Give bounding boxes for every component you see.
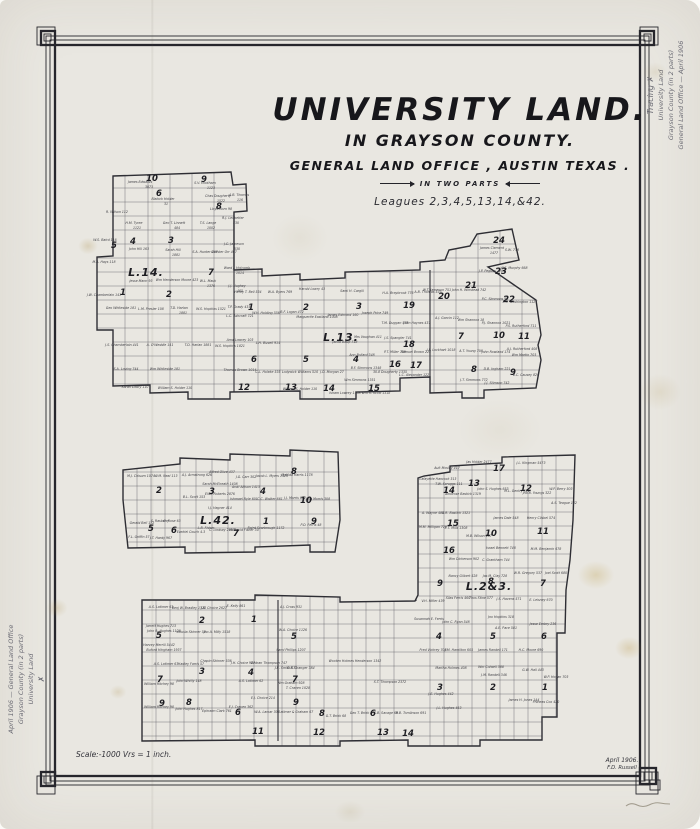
parcel-label: G.R. Bastick 1321 (442, 511, 470, 515)
parcel-label: Latimer & Graham 67 (279, 710, 314, 714)
parcel-label: Susannah E. Ferris (414, 617, 444, 621)
parcel-label: H.M. Tyree (126, 221, 143, 225)
section-number: 1 (263, 517, 269, 527)
draftsman-note: F.D. Russell (592, 765, 652, 772)
parcel-label: C.E. Granger 384 (287, 666, 314, 670)
parcel-label: A. O'Weddle 141 (146, 343, 174, 347)
section-number: 7 (157, 675, 163, 685)
parcel-label: Bedran Thompson 747 (251, 661, 287, 665)
section-number: 15 (368, 384, 380, 394)
parcel-label: 1123 (207, 186, 215, 190)
parcel-label: W.A. Lamar 307 (254, 710, 279, 714)
parcel-label: S.A. Loving 744 (114, 367, 139, 371)
section-number: 7 (458, 332, 464, 342)
parcel-label: S.W. 738 (505, 248, 519, 252)
parcel-label: 484 (174, 226, 180, 230)
section-number: 9 (293, 698, 299, 708)
section-number: 1 (120, 288, 126, 298)
parcel-label: 1477 (490, 251, 498, 255)
parcel-label: A.S. Latimer 62 (238, 679, 264, 683)
section-number: 10 (146, 174, 158, 184)
parcel-label: W.S. Hopkins 1521 (196, 307, 226, 311)
section-number: 3 (209, 487, 215, 497)
parcel-label: J.C. Jameson (223, 242, 244, 246)
parcel-label: J.D. Morgan 27 (319, 370, 344, 374)
section-number: 9 (437, 579, 443, 589)
parcel-label: Jesse Mann 93 (128, 279, 152, 283)
parcel-label: L.C. Alexander 122 (399, 373, 429, 377)
parcel-label: S.T. Thompson 2372 (374, 680, 406, 684)
right-margin-annotation: Tracing ✗ University Land Grayson County… (645, 15, 691, 175)
parcel-label: Ward J. Holcomb (224, 266, 250, 270)
parcel-label: B.B. Tomlinson 691 (396, 711, 427, 715)
parcel-label: W.L. Mauk (200, 279, 216, 283)
parcel-label: 1376 (207, 284, 215, 288)
section-number: 5 (490, 632, 496, 642)
section-number: 12 (520, 484, 532, 494)
margin-x-mark: ✗ (36, 593, 48, 765)
section-number: 15 (447, 519, 459, 529)
section-number: 4 (352, 355, 359, 365)
parcel-label: J.B. Choice 2627 (200, 606, 227, 610)
parcel-label: Buford Hingham 1937 (146, 648, 181, 652)
league-label: L.13. (323, 331, 359, 344)
section-number: 11 (252, 727, 264, 737)
section-number: 7 (208, 268, 214, 278)
parcel-label: Wm Whiteside 181 (150, 367, 180, 371)
title-block: UNIVERSITY LAND. IN GRAYSON COUNTY. GENE… (268, 94, 652, 208)
section-number: 10 (300, 496, 312, 506)
league-label: L.14. (128, 266, 164, 279)
parcel-label: G.W. Hall 443 (522, 668, 544, 672)
parcel-label: 1121 (133, 226, 141, 230)
section-number: 4 (435, 632, 442, 642)
parcel-label: Ault Mosley 417 (433, 466, 460, 470)
map-title: UNIVERSITY LAND. (268, 94, 652, 127)
parcel-label: Thos Stine 577 (469, 596, 493, 600)
parcel-label: James Edmond 160 (327, 313, 359, 317)
section-number: 11 (518, 332, 530, 342)
parcel-label: J.J. Stimson 742 (484, 381, 510, 385)
left-arrow-flourish-icon (380, 183, 414, 184)
parcel-label: 530 (234, 247, 240, 251)
section-number: 2 (166, 290, 172, 300)
section-number: 6 (171, 526, 177, 536)
parcel-label: Lafayette Hancock 313 (420, 477, 457, 481)
parcel-label: Blalock Holder (151, 197, 175, 201)
margin-line: General Land Office — April 1906 (677, 15, 687, 175)
parcel-label: Harvey Merrill 5442 (143, 643, 175, 647)
parcel-label: J.T. Simmons 772 (459, 378, 487, 382)
section-number: 13 (377, 728, 389, 738)
parcel-label: B.F. Logan 472 (280, 310, 303, 314)
margin-line: April 1906 — General Land Office (7, 593, 17, 765)
margin-line: University Land (657, 15, 667, 175)
parcel-label: Wm Shannon 18 (458, 318, 484, 322)
section-number: 9 (201, 175, 207, 185)
parcel-label: A.S. Latimer 63 (148, 605, 174, 609)
section-number: 8 (291, 467, 297, 477)
parcel-label: W.A. Byers 769 (268, 290, 292, 294)
parcel-label: A.T. Young 708 (458, 349, 483, 353)
parcel-label: G.T. Brink 68 (326, 714, 346, 718)
parcel-label: Geo T. Brink 8 (350, 711, 372, 715)
parcel-label: Henry Clisbel 574 (527, 516, 555, 520)
margin-line: Grayson County (in 2 parts) (667, 15, 677, 175)
parcel-label: 116 (237, 198, 243, 202)
parcel-label: Ezekiel Couch 4.3 (177, 530, 205, 534)
league-label: L.2&3. (466, 580, 512, 593)
leagues-note: Leagues 2,3,4,5,13,14,&42. (268, 196, 652, 208)
parcel-label: Jesse Embry 236 (529, 622, 557, 626)
parcel-label: R.J. Ledbetter (222, 216, 244, 220)
parcel-label: Saml H. Cargill (340, 289, 364, 293)
section-number: 9 (159, 699, 165, 709)
section-number: 4 (129, 237, 136, 247)
parcel-label: Saml Phillips 1207 (276, 648, 305, 652)
parcel-label: Jno A. Milly 1518 (203, 630, 231, 634)
section-number: 7 (292, 675, 298, 685)
parcel-label: John Haynes 437 (403, 321, 431, 325)
parcel-label: W.M. Neal 113 (155, 474, 178, 478)
section-number: 4 (259, 487, 266, 497)
parcel-label: A.J. Rutherford 408 (506, 347, 538, 351)
parcel-label: Wooten Holmes Henderson 1342 (329, 659, 382, 663)
section-number: 17 (493, 464, 505, 474)
section-number: 3 (199, 667, 205, 677)
parcel-label: W.P. Hogan 703 (544, 675, 569, 679)
parcel-label: Wm Colwell 388 (478, 665, 504, 669)
parcel-label: J.M. Hamilton 605 (444, 648, 473, 652)
section-number: 7 (540, 579, 546, 589)
parcel-label: Sarah Lowry 110 (122, 385, 149, 389)
section-number: 1 (251, 615, 257, 625)
section-number: 1 (542, 683, 548, 693)
section-number: 8 (216, 202, 222, 212)
section-number: 20 (438, 292, 450, 302)
office-line: GENERAL LAND OFFICE , AUSTIN TEXAS . (268, 158, 652, 173)
margin-line: University Land (27, 593, 37, 765)
section-number: 23 (495, 267, 507, 277)
parcel-label: William S. Holder 110 (158, 386, 192, 390)
section-number: 2 (156, 486, 162, 496)
section-number: 17 (410, 361, 422, 371)
parcel-label: M.J. Chisum 1074 (127, 474, 155, 478)
parcel-label: 1002 (207, 226, 215, 230)
section-number: 8 (186, 698, 192, 708)
parcel-label: Jas Holder 2477 (465, 460, 491, 464)
date-note: April 1906. (592, 757, 652, 765)
parcel-label: Harold Lowry 43 (299, 287, 325, 291)
parcel-label: 1881 (179, 311, 187, 315)
section-number: 24 (493, 236, 505, 246)
parcel-label: Fred Vickrey 708 (419, 648, 446, 652)
section-number: 13 (468, 479, 480, 489)
parcel-label: J.G. Carr 302 (235, 475, 256, 479)
parcel-label: C. Grantham 744 (482, 558, 509, 562)
parcel-label: John C. Ryan 548 (441, 620, 469, 624)
section-number: 4 (247, 668, 254, 678)
section-number: 6 (370, 709, 376, 719)
section-number: 12 (313, 728, 325, 738)
section-number: 10 (485, 529, 497, 539)
parcel-label: D.B. Ingham 221 (484, 367, 511, 371)
parcel-label: Volusia Skinner 58 (176, 630, 206, 634)
parcel-label: B.L. Scott 153 (183, 495, 205, 499)
parcel-label: Ephraim Clark 761 (202, 709, 232, 713)
league-label: L.42. (200, 514, 236, 527)
parcel-label: P.S. Rutherford 711 (506, 324, 537, 328)
section-number: 5 (303, 355, 309, 365)
section-number: 6 (156, 189, 162, 199)
parcel-label: T.S. Lange (200, 221, 216, 225)
parcel-label: Chas Dougherty (205, 194, 231, 198)
parcel-label: M.M. Milligan 720 (419, 525, 447, 529)
parcel-label: Henry T. Bell 534 (234, 290, 261, 294)
parcel-label: Lodywick Williams 510 (282, 370, 318, 374)
parcel-label: Israel Bennett 748 (486, 546, 515, 550)
parcel-label: E. Leisney 670 (529, 598, 552, 602)
parcel-label: 430 (233, 221, 239, 225)
section-number: 14 (402, 729, 414, 739)
parcel-label: Wm Dickerson 902 (449, 557, 479, 561)
parcel-label: J.S. Havens 571 (496, 597, 522, 601)
parcel-label: A.S. Latimer 63 (153, 662, 179, 666)
section-number: 3 (356, 302, 362, 312)
parcel-label: Martha Holmes 408 (435, 666, 466, 670)
section-number: 9 (510, 368, 516, 378)
parcel-label: Joel Scott 680 (544, 571, 567, 575)
parcel-label: Wm Martin 703 (512, 353, 537, 357)
section-number: 22 (503, 295, 515, 305)
parcel-label: John Whitly 148 (175, 679, 201, 683)
parcel-label: Nancy Gilbert 528 (449, 574, 478, 578)
parcel-label: W.H. Holding 556 (252, 311, 280, 315)
parcel-label: John Hill 163 (128, 247, 149, 251)
section-number: 11 (537, 527, 549, 537)
parcel-label: H.C. Moore 690 (519, 648, 544, 652)
parcel-label: Chapin Skinner 536 (200, 659, 231, 663)
parcel-label: Ishmael Ryle 601 (230, 497, 258, 501)
parcel-label: Alfred Olive 437 (208, 470, 235, 474)
section-number: 6 (541, 632, 547, 642)
parcel-label: I.J. Hagner 414 (208, 506, 232, 510)
section-number: 2 (490, 683, 496, 693)
section-number: 6 (251, 355, 257, 365)
section-number: 3 (437, 683, 443, 693)
parcel-label: E.J. Craven 362 (229, 705, 253, 709)
section-number: 2 (303, 303, 309, 313)
section-number: 5 (291, 632, 297, 642)
parcel-label: M.A. Hays 118 (92, 260, 115, 264)
parcel-label: C.C. Walker 661 (257, 497, 283, 501)
section-number: 1 (248, 303, 254, 313)
parcel-label: J.T. Hardy 967 (149, 536, 172, 540)
parcel-label: 3073 (145, 185, 153, 189)
parcel-label: A.E. Pace 581 (494, 626, 517, 630)
parcel-label: Jno Hopkins 318 (487, 615, 514, 619)
parcel-label: J.L. Lockhart 1018 (426, 348, 456, 352)
parcel-label: Jarrett Hughes 713 (145, 624, 176, 628)
section-number: 10 (493, 331, 505, 341)
parcel-label: J.L. Hughes 463 (436, 706, 462, 710)
parcel-label: Geo Whiteside 181 (106, 306, 136, 310)
parcel-label: T.D. Harlan 1881 (185, 343, 212, 347)
parcel-label: A.S. Teague 182 (550, 501, 577, 505)
parcel-label: T.P. Grady 433 (228, 305, 251, 309)
parcel-label: A. Wayne 485 (421, 511, 444, 515)
parts-note-text: IN TWO PARTS (420, 180, 501, 188)
parcel-label: C.L. Holeke 535 (255, 370, 280, 374)
parcel-label: F.L. Griffin 57 (128, 535, 149, 539)
parcel-label: 31 (164, 202, 168, 206)
parcel-label: Wm Graham 928 (277, 681, 304, 685)
parcel-label: J.W. Chamberlain 141 (86, 293, 121, 297)
parcel-label: B.C. Causey 820 (513, 373, 539, 377)
parcel-label: A.J. Garvin 112 (434, 316, 459, 320)
parcel-label: M.M. Benjamin 678 (531, 547, 562, 551)
parcel-label: Matilda Harris 1178 (281, 473, 312, 477)
parcel-label: E. Kelly 861 (227, 604, 246, 608)
parcel-label: Sarah Hill (165, 248, 180, 252)
section-number: 2 (199, 616, 205, 626)
parcel-label: W.S. Hopkins 1821 (215, 344, 245, 348)
parcel-label: L.H. Bizzell 914 (256, 341, 280, 345)
section-number: 5 (156, 631, 162, 641)
section-number: 9 (311, 517, 317, 527)
parcel-label: H.A. Braybrook 776 (382, 291, 413, 295)
parcel-label: Thomas Brown 1014 (224, 368, 257, 372)
section-number: 16 (389, 360, 401, 370)
parcel-label: S.B. Savage 69 (374, 711, 398, 715)
section-number: 7 (233, 529, 239, 539)
section-number: 18 (403, 340, 415, 350)
parcel-label: L.M. Presler 108 (138, 307, 164, 311)
parcel-label: J.M. Randell 346 (480, 673, 507, 677)
section-number: 19 (403, 301, 415, 311)
parcel-label: G. Rose 63 (163, 519, 180, 523)
pencil-note-squiggle (626, 803, 670, 807)
parcel-label: L.C. Ashcraft 721 (226, 314, 253, 318)
parcel-label: J.J. Hughey (227, 284, 245, 288)
parcel-label: Jas M. Clay 728 (482, 574, 507, 578)
parcel-label: W.R. Gregory 537 (514, 571, 542, 575)
parcel-label: Geo T. Linnett (163, 221, 186, 225)
section-number: 8 (319, 709, 325, 719)
parcel-label: A.J. Armstrong 626 (181, 473, 212, 477)
right-arrow-flourish-icon (506, 183, 540, 184)
section-number: 14 (323, 384, 335, 394)
parcel-label: J.S. Chamberlain 441 (104, 343, 138, 347)
section-number: 5 (148, 524, 154, 534)
parcel-label: E.J. Choice 214 (251, 696, 275, 700)
parcel-label: Phineas Cox 420 (533, 700, 560, 704)
parcel-label: T. Craven 1028 (286, 686, 310, 690)
map-subtitle: IN GRAYSON COUNTY. (268, 131, 652, 150)
parcel-label: A.J. Cross 931 (279, 605, 302, 609)
parcel-label: Ardil Allison 1413 (231, 485, 260, 489)
parcel-label: 1014 (236, 271, 244, 275)
scale-note: Scale:-1000 Vrs = 1 inch. (76, 750, 171, 759)
section-number: 12 (238, 383, 250, 393)
left-margin-annotation: April 1906 — General Land Office Grayson… (7, 593, 53, 765)
parcel-label: Ama Lowrey 103 (226, 338, 254, 342)
parcel-label: James Clement (479, 246, 505, 250)
margin-line: Tracing ✗ (645, 15, 657, 175)
parcel-label: 1881 (172, 253, 180, 257)
section-number: 5 (111, 241, 117, 251)
parcel-label: V.H. Miller 439 (421, 599, 444, 603)
parcel-label: Silas Ferris 460 (446, 596, 470, 600)
parcel-label: Wm Simmons 1351 (344, 378, 375, 382)
section-number: 6 (235, 708, 241, 718)
section-number: 21 (465, 281, 477, 291)
parcel-label: A.B. Thomas (228, 193, 249, 197)
section-number: 16 (443, 546, 455, 556)
parcel-label: W.P. Berry 503 (549, 487, 572, 491)
parcel-label: James Dale 548 (493, 516, 519, 520)
parcel-label: James Randell 171 (477, 648, 508, 652)
margin-line: Grayson County (in 2 parts) (17, 593, 27, 765)
section-number: 13 (285, 383, 297, 393)
parcel-label: R. Wilson 112 (106, 210, 128, 214)
parcel-label: Joseph Price 749 (361, 311, 389, 315)
parcel-label: J.L. Kingman 5473 (516, 461, 546, 465)
parcel-label: T.D. Harlan (170, 306, 188, 310)
date-block: April 1906. F.D. Russell (592, 757, 652, 773)
section-number: 14 (443, 486, 455, 496)
scanned-map-sheet: { "document": { "title": "UNIVERSITY LAN… (0, 0, 700, 829)
section-number: 8 (471, 365, 477, 375)
parts-note: IN TWO PARTS (268, 180, 652, 188)
section-number: 3 (168, 236, 174, 246)
